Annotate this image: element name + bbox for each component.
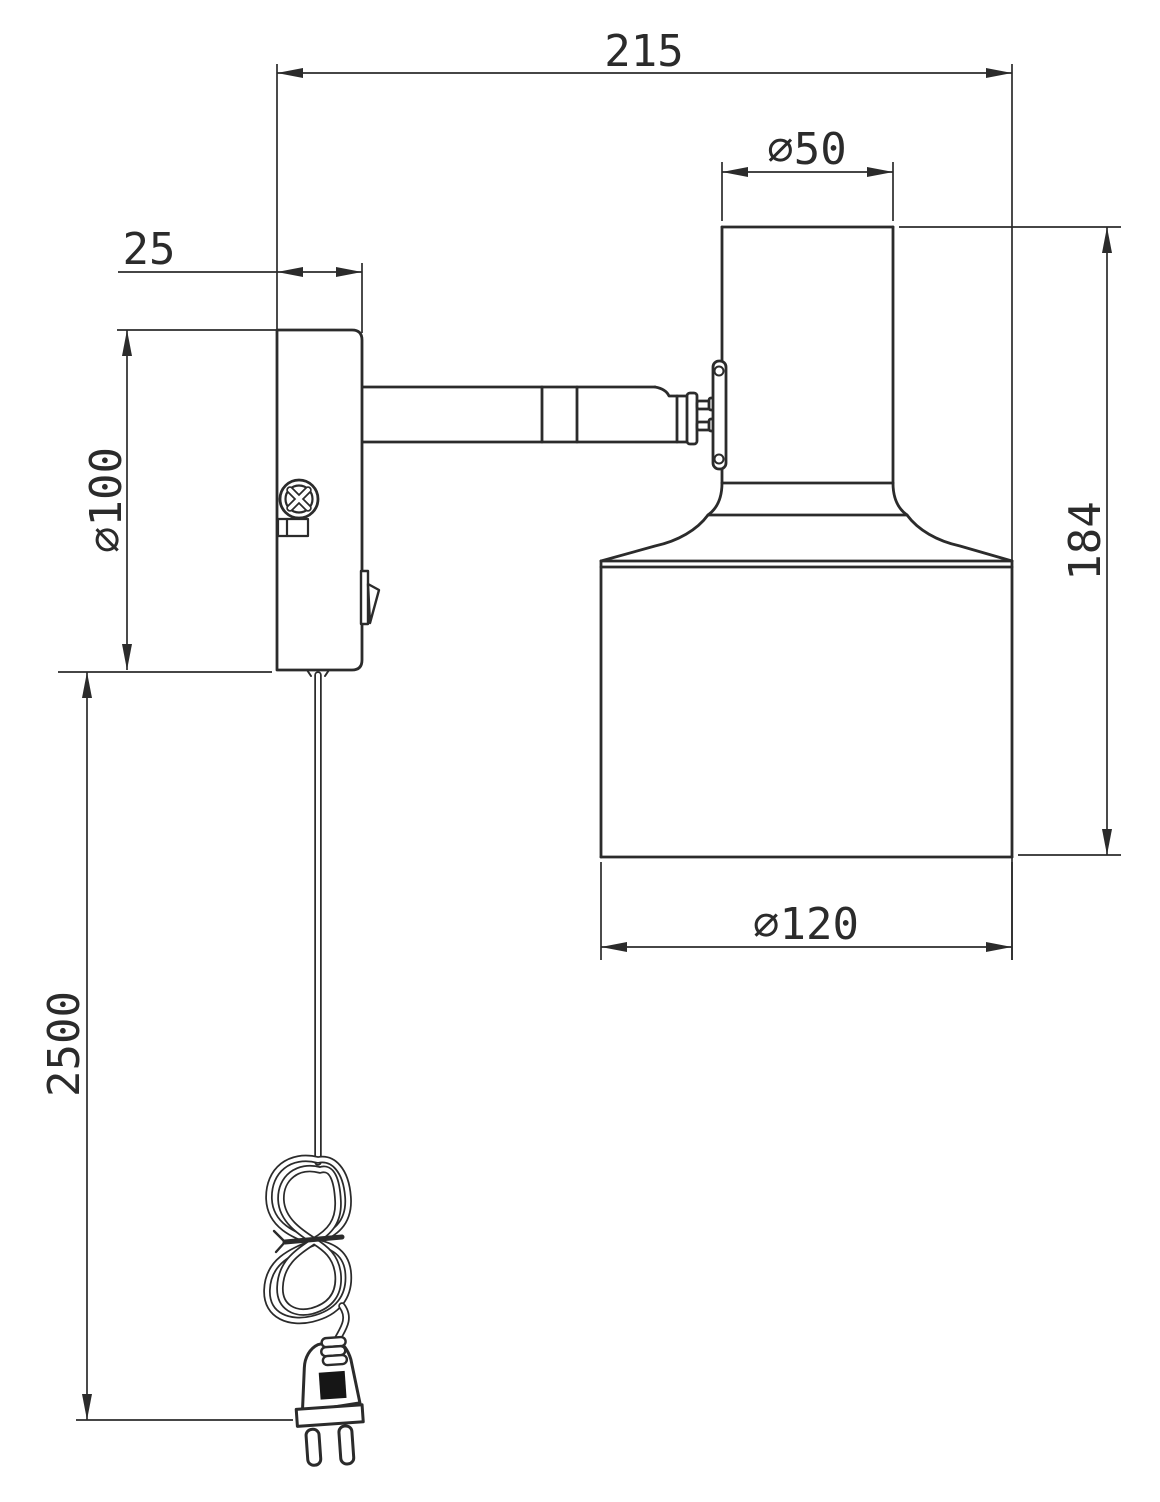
cord-tie-end xyxy=(274,1231,285,1252)
plug-flange xyxy=(296,1405,363,1427)
lamp-arm xyxy=(362,361,726,469)
arrowhead-right xyxy=(986,942,1012,952)
arrowhead-up xyxy=(82,672,92,698)
shoulder-right xyxy=(893,483,907,515)
plug-label xyxy=(319,1371,347,1400)
arrowhead-down xyxy=(82,1394,92,1420)
dimension-cable-length: 2500 xyxy=(39,672,293,1420)
shoulder-left xyxy=(708,483,722,515)
dimension-overall-depth: 215 xyxy=(277,26,1012,960)
switch-lever xyxy=(368,584,379,623)
power-cord xyxy=(267,675,348,1342)
dimension-label: ⌀100 xyxy=(81,447,132,553)
dimension-label: ⌀120 xyxy=(753,899,859,950)
technical-drawing: 215 ⌀50 25 ⌀100 184 xyxy=(0,0,1160,1502)
dimension-head-height: 184 xyxy=(899,227,1121,855)
dimension-label: 184 xyxy=(1060,501,1111,580)
dimension-base-diameter: ⌀100 xyxy=(58,330,277,672)
dimension-label: 215 xyxy=(604,26,683,77)
arrowhead-right xyxy=(986,68,1012,78)
arrowhead-left xyxy=(601,942,627,952)
plug-prong xyxy=(339,1426,355,1465)
arm-step xyxy=(655,387,688,396)
lamp-head xyxy=(601,227,1012,857)
dimension-shade-diameter: ⌀120 xyxy=(601,862,1012,960)
strain-relief-rib xyxy=(323,1355,348,1366)
mount-bracket xyxy=(713,361,726,469)
arrowhead-up xyxy=(122,330,132,356)
arrowhead-up xyxy=(1102,227,1112,253)
power-plug xyxy=(291,1336,366,1467)
dimension-label: 2500 xyxy=(39,991,90,1097)
wall-plate xyxy=(277,330,379,676)
dimension-head-diameter: ⌀50 xyxy=(722,124,893,221)
arrowhead-right xyxy=(336,267,362,277)
arrowhead-right xyxy=(867,167,893,177)
arrowhead-down xyxy=(1102,829,1112,855)
dimension-label: 25 xyxy=(123,224,176,275)
arrowhead-left xyxy=(277,267,303,277)
arrowhead-left xyxy=(722,167,748,177)
arrowhead-left xyxy=(277,68,303,78)
dimension-base-depth: 25 xyxy=(118,224,362,333)
arm-cap xyxy=(687,393,697,444)
cone-left xyxy=(601,515,708,561)
arrowhead-down xyxy=(122,644,132,670)
cord-clamp xyxy=(278,519,308,536)
dimension-label: ⌀50 xyxy=(767,124,846,175)
wall-plate-body xyxy=(277,330,362,670)
power-switch xyxy=(361,571,368,624)
plug-prong xyxy=(306,1429,321,1466)
cone-right xyxy=(907,515,1012,561)
